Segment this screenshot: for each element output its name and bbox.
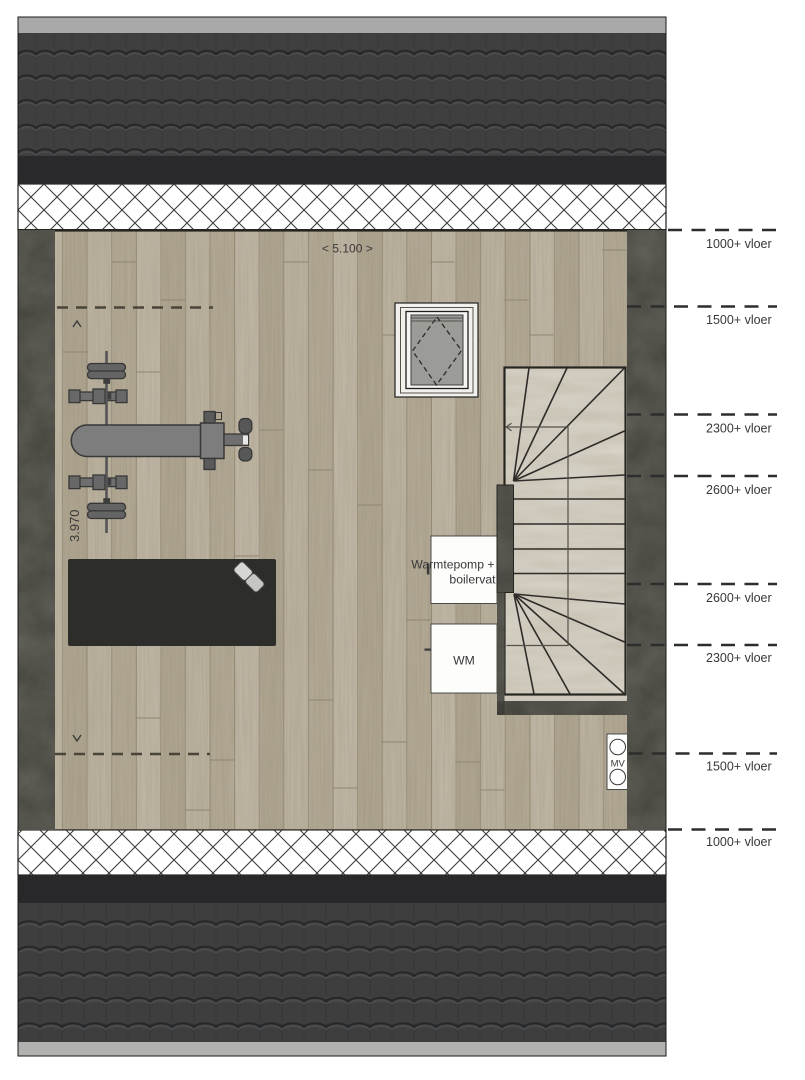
svg-text:2600+ vloer: 2600+ vloer	[706, 591, 772, 605]
svg-text:2300+ vloer: 2300+ vloer	[706, 651, 772, 665]
svg-text:boilervat: boilervat	[449, 573, 496, 587]
svg-text:< 5.100 >: < 5.100 >	[322, 242, 373, 256]
svg-text:2600+ vloer: 2600+ vloer	[706, 483, 772, 497]
svg-text:2300+ vloer: 2300+ vloer	[706, 421, 772, 435]
svg-text:1500+ vloer: 1500+ vloer	[706, 313, 772, 327]
svg-text:1000+ vloer: 1000+ vloer	[706, 835, 772, 849]
svg-text:MV: MV	[611, 759, 626, 770]
svg-text:WM: WM	[453, 654, 475, 668]
svg-text:3.970: 3.970	[67, 509, 82, 542]
svg-text:Warmtepomp +: Warmtepomp +	[411, 558, 494, 572]
svg-text:1500+ vloer: 1500+ vloer	[706, 759, 772, 773]
svg-text:1000+ vloer: 1000+ vloer	[706, 237, 772, 251]
